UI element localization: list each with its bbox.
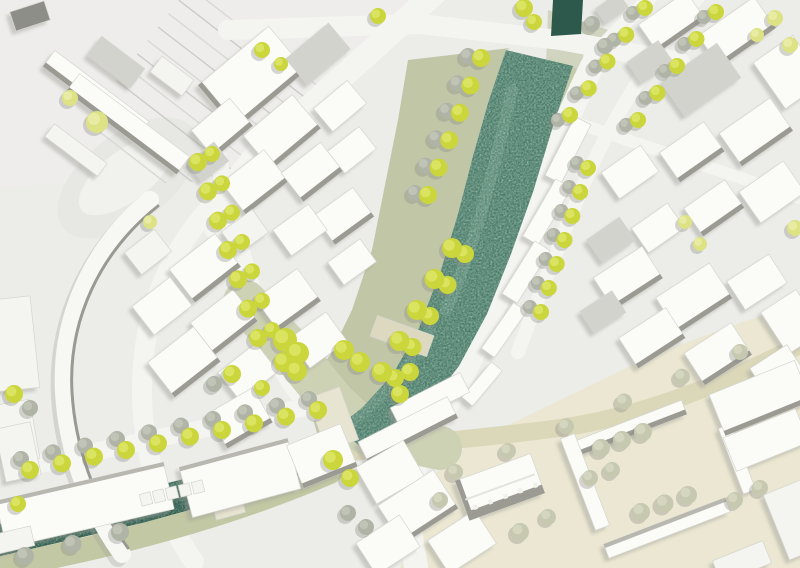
tree-highlight <box>675 370 684 379</box>
tree-highlight <box>225 367 235 377</box>
tree-highlight <box>231 272 241 282</box>
tree-highlight <box>571 157 579 165</box>
tree-highlight <box>559 420 568 429</box>
tree-highlight <box>617 395 626 404</box>
tree-highlight <box>605 463 614 472</box>
tree-highlight <box>352 354 363 365</box>
tree-highlight <box>409 302 420 313</box>
tree-highlight <box>517 1 527 11</box>
tree-highlight <box>563 181 571 189</box>
tree-highlight <box>601 55 610 64</box>
building <box>152 489 166 503</box>
tree-highlight <box>583 471 592 480</box>
tree-highlight <box>524 301 532 309</box>
tree-highlight <box>788 221 797 230</box>
tree-highlight <box>563 108 572 117</box>
tree-highlight <box>336 342 347 353</box>
tree-highlight <box>119 443 129 453</box>
building <box>139 492 153 506</box>
tree-highlight <box>265 323 274 332</box>
tree-highlight <box>566 209 575 218</box>
tree-highlight <box>245 265 254 274</box>
tree-highlight <box>151 436 161 446</box>
tree-highlight <box>393 387 403 397</box>
tree-highlight <box>442 133 452 143</box>
tree-highlight <box>247 416 257 426</box>
building-roof <box>165 486 179 500</box>
tree-highlight <box>325 452 336 463</box>
tree-highlight <box>144 216 152 224</box>
tree-highlight <box>451 77 460 86</box>
tree-highlight <box>421 188 431 198</box>
tree-highlight <box>690 32 699 41</box>
tree-highlight <box>174 419 183 428</box>
tree-highlight <box>552 114 560 122</box>
tree-highlight <box>289 363 300 374</box>
tree-highlight <box>201 184 211 194</box>
tree-highlight <box>638 1 647 10</box>
tree-highlight <box>11 497 20 506</box>
tree-highlight <box>571 87 579 95</box>
tree-highlight <box>733 345 742 354</box>
tree-highlight <box>694 238 702 246</box>
tree-highlight <box>65 537 75 547</box>
tree-highlight <box>55 456 65 466</box>
tree-highlight <box>279 409 289 419</box>
tree-highlight <box>558 233 567 242</box>
tree-highlight <box>270 399 279 408</box>
tree-highlight <box>14 452 23 461</box>
tree-highlight <box>582 82 591 91</box>
tree-highlight <box>46 446 55 455</box>
tree-highlight <box>590 61 598 69</box>
tree-highlight <box>431 160 441 170</box>
tree-highlight <box>651 86 660 95</box>
tree-highlight <box>753 481 762 490</box>
tree-highlight <box>550 257 559 266</box>
tree-highlight <box>698 11 706 19</box>
tree-highlight <box>433 493 442 502</box>
tree-highlight <box>542 281 551 290</box>
tree-highlight <box>241 301 251 311</box>
masterplan-svg <box>0 0 800 568</box>
tree-highlight <box>709 5 718 14</box>
tree-highlight <box>18 549 28 559</box>
tree-highlight <box>191 155 201 165</box>
tree-highlight <box>448 465 457 474</box>
tree-highlight <box>452 105 462 115</box>
tree-highlight <box>110 432 119 441</box>
tree-highlight <box>276 354 287 365</box>
river-channel-top <box>551 0 583 36</box>
tree-highlight <box>255 43 264 52</box>
tree-highlight <box>371 9 380 18</box>
tree-highlight <box>142 426 151 435</box>
tree-highlight <box>207 377 216 386</box>
tree-highlight <box>7 387 17 397</box>
tree-highlight <box>430 132 439 141</box>
tree-highlight <box>23 463 33 473</box>
tree-highlight <box>463 78 473 88</box>
tree-highlight <box>627 7 635 15</box>
tree-highlight <box>679 38 687 46</box>
tree-highlight <box>403 365 413 375</box>
tree-highlight <box>540 253 548 261</box>
tree-highlight <box>408 186 417 195</box>
tree-highlight <box>235 235 244 244</box>
tree-highlight <box>640 92 648 100</box>
tree-highlight <box>63 91 72 100</box>
tree-highlight <box>206 412 215 421</box>
tree-highlight <box>679 216 687 224</box>
tree-highlight <box>359 520 368 529</box>
tree-highlight <box>391 333 402 344</box>
tree-highlight <box>657 496 667 506</box>
tree-highlight <box>225 206 234 215</box>
tree-highlight <box>113 525 123 535</box>
tree-highlight <box>343 471 353 481</box>
tree-highlight <box>419 159 428 168</box>
tree-highlight <box>275 330 288 343</box>
building-roof <box>152 489 166 503</box>
tree-highlight <box>594 441 604 451</box>
tree-highlight <box>444 240 455 251</box>
building-roof <box>191 480 205 494</box>
tree-highlight <box>426 271 437 282</box>
tree-highlight <box>615 433 625 443</box>
tree-highlight <box>728 493 737 502</box>
tree-highlight <box>574 185 583 194</box>
site-plan-rendering <box>0 0 800 568</box>
tree-highlight <box>548 229 556 237</box>
tree-highlight <box>341 506 350 515</box>
tree-highlight <box>474 51 484 61</box>
tree-highlight <box>768 11 777 20</box>
tree-highlight <box>275 58 283 66</box>
tree-highlight <box>598 39 607 48</box>
tree-highlight <box>205 147 214 156</box>
tree-highlight <box>636 425 646 435</box>
tree-highlight <box>634 505 644 515</box>
tree-highlight <box>556 205 564 213</box>
tree-highlight <box>88 113 100 125</box>
tree-highlight <box>238 406 247 415</box>
tree-highlight <box>670 59 679 68</box>
tree-highlight <box>183 429 193 439</box>
building <box>178 483 192 497</box>
tree-highlight <box>659 65 667 73</box>
tree-highlight <box>532 277 540 285</box>
tree-highlight <box>215 177 224 186</box>
tree-highlight <box>255 294 264 303</box>
tree-highlight <box>87 449 97 459</box>
tree-highlight <box>23 401 32 410</box>
tree-highlight <box>620 119 628 127</box>
building <box>165 486 179 500</box>
tree-highlight <box>251 331 261 341</box>
tree-highlight <box>751 29 759 37</box>
tree-highlight <box>620 28 629 37</box>
tree-highlight <box>440 104 449 113</box>
tree-highlight <box>78 439 87 448</box>
tree-highlight <box>215 423 225 433</box>
tree-highlight <box>374 364 385 375</box>
tree-highlight <box>783 38 792 47</box>
building-roof <box>178 483 192 497</box>
building-roof <box>139 492 153 506</box>
tree-highlight <box>461 49 470 58</box>
tree-highlight <box>631 113 640 122</box>
tree-highlight <box>527 15 536 24</box>
tree-highlight <box>255 381 264 390</box>
tree-highlight <box>289 344 301 356</box>
tree-highlight <box>534 305 543 314</box>
tree-highlight <box>513 525 523 535</box>
tree-highlight <box>681 488 691 498</box>
tree-highlight <box>311 403 321 413</box>
tree-highlight <box>221 243 231 253</box>
tree-highlight <box>541 510 550 519</box>
tree-highlight <box>585 17 594 26</box>
tree-highlight <box>211 213 221 223</box>
tree-highlight <box>581 161 590 170</box>
building <box>191 480 205 494</box>
tree-highlight <box>302 392 311 401</box>
tree-highlight <box>501 444 510 453</box>
